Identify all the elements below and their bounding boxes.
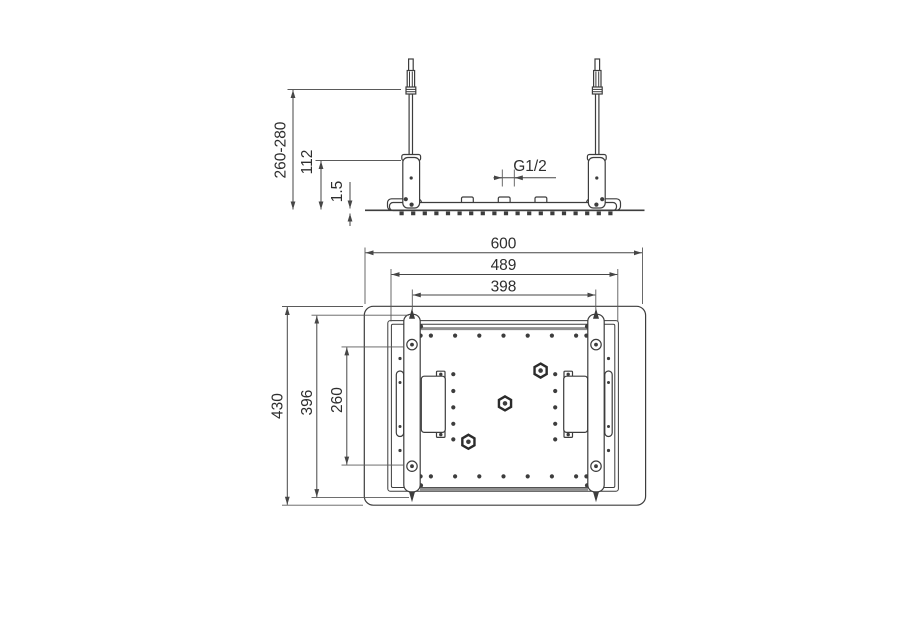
- dim-label-rod-spacing: 398: [491, 279, 517, 296]
- service-cutout-right: [564, 371, 588, 437]
- right-suspension-rod: [587, 59, 606, 208]
- dim-label-hole-spacing: 260: [329, 387, 346, 413]
- shower-plate-side: [390, 197, 617, 211]
- mounting-rail-right: [588, 308, 604, 502]
- dim-label-overall-width: 600: [491, 236, 517, 253]
- technical-drawing: 260-280 112 1.5 G1/2: [0, 0, 900, 629]
- dim-label-adjustable-height: 260-280: [273, 121, 290, 178]
- dim-label-plate-width: 489: [491, 257, 517, 274]
- dim-label-bracket-height: 112: [299, 150, 316, 175]
- plan-view: 600 489 398 430 396 260: [270, 236, 646, 506]
- dim-label-rail-length: 396: [299, 390, 316, 416]
- dim-label-thread: G1/2: [513, 158, 547, 175]
- spray-nozzles-side: [400, 212, 613, 216]
- side-elevation-view: 260-280 112 1.5 G1/2: [273, 59, 645, 226]
- dim-label-overall-depth: 430: [270, 393, 287, 419]
- drawing-canvas: 260-280 112 1.5 G1/2: [0, 0, 900, 629]
- mounting-rail-left: [404, 308, 420, 502]
- service-cutout-left: [421, 371, 445, 437]
- dim-label-panel-thickness: 1.5: [329, 181, 346, 203]
- left-suspension-rod: [402, 59, 421, 208]
